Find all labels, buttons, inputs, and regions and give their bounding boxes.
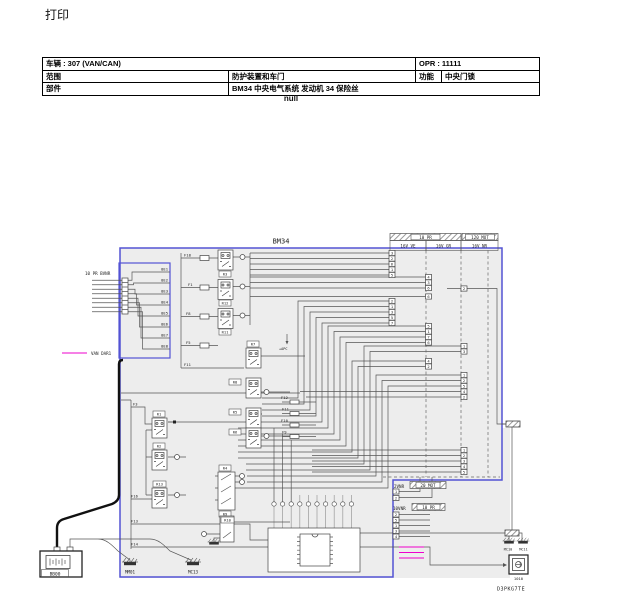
harness-band-2-label: 120 MOT — [471, 235, 489, 240]
wire-label: 8E2 — [161, 278, 168, 283]
pin: 3 — [395, 529, 397, 534]
sheet-code: D3PKG7TE — [497, 587, 525, 593]
pin: 3 — [463, 459, 465, 464]
junction-dot — [173, 421, 176, 424]
fuse-label-f18: F18 — [184, 253, 192, 258]
fuse-label-f1: F1 — [188, 282, 193, 287]
col1-header: 16V VE — [400, 244, 416, 249]
relay-label-r7: R7 — [251, 342, 256, 347]
pin: 7 — [427, 335, 429, 340]
relay-r4-body — [218, 472, 235, 510]
fuse-label-f8: F8 — [186, 311, 191, 316]
column-headers: 10 PR 120 MOT 16V VE 16V GR 16V NR — [390, 234, 498, 251]
pin: 2 — [391, 299, 393, 304]
relay-label-r1: R1 — [157, 412, 162, 417]
relay-label-r8: R8 — [233, 380, 238, 385]
ground-label-mc11: MC11 — [519, 548, 527, 552]
fuse-label-f13: F13 — [131, 519, 138, 524]
unit-label: 1010 — [514, 576, 524, 581]
wire-label: 8E8 — [161, 344, 169, 349]
ground-label-mm01: MM01 — [125, 570, 136, 575]
col2-header: 16V GR — [436, 244, 452, 249]
fuse-label-f12: F12 — [281, 395, 288, 400]
left-connector-label: 10 PR BVNR — [85, 271, 111, 276]
van-bus-legend: VAN DAR1 — [91, 351, 112, 356]
relay-label-r3: R3 — [223, 272, 228, 277]
fuse-label-f9: F9 — [282, 430, 287, 435]
fuse-label-f3: F3 — [133, 402, 138, 407]
pin: 5 — [463, 470, 465, 475]
relay-label-r2: R2 — [157, 444, 162, 449]
ground-label-mc10: MC10 — [504, 548, 512, 552]
battery-feed-wire — [57, 360, 123, 551]
wire-label: 8E1 — [161, 267, 169, 272]
harness-band-1-label: 10 PR — [419, 235, 432, 240]
conn-b-label: 10VNR — [393, 506, 406, 511]
pin: 5 — [463, 384, 465, 389]
pin: 2 — [463, 378, 465, 383]
relay-label-r5: R5 — [233, 410, 238, 415]
relay-label-r13: R13 — [156, 482, 163, 487]
diagram-title: BM34 — [273, 238, 290, 246]
pin: 5 — [395, 518, 397, 523]
conn-b-name: 10 PR — [422, 505, 435, 510]
apc-annotation: +APC — [279, 347, 287, 351]
pin: 3 — [391, 310, 393, 315]
fuse-label-f11: F11 — [184, 362, 192, 367]
pin: 2 — [427, 364, 429, 369]
pin: 2 — [463, 453, 465, 458]
wiring-diagram: BM34 10 PR BVNR 8E1 8E2 8E3 8E4 8E5 8E6 … — [0, 0, 636, 607]
pin: 2 — [395, 496, 397, 501]
pin: 7 — [391, 321, 393, 326]
relay-label-r11: R11 — [222, 330, 230, 335]
wire-label: 8E6 — [161, 322, 169, 327]
fuse-label-f10: F10 — [281, 418, 289, 423]
pin: 5 — [391, 273, 393, 278]
pin: 3 — [427, 280, 429, 285]
splice-box — [506, 421, 520, 427]
relay-label-r4: R4 — [223, 466, 228, 471]
fuse-label-f11b: F11 — [282, 407, 290, 412]
relay-label-r12: R12 — [222, 301, 229, 306]
wire-label: 8E3 — [161, 289, 168, 294]
pin: 2 — [391, 256, 393, 261]
wire-label: 8E7 — [161, 333, 168, 338]
relay-label-r10: R10 — [224, 518, 232, 523]
pin: 2 — [463, 395, 465, 400]
pin: 3 — [391, 251, 393, 256]
wire-label: 8E4 — [161, 300, 169, 305]
pin: 2 — [395, 512, 397, 517]
pin: 5 — [427, 324, 429, 329]
pin: 3 — [463, 349, 465, 354]
fuse-label-f5: F5 — [186, 340, 191, 345]
ground-label-mc13: MC13 — [188, 570, 199, 575]
fuse-label-f16: F16 — [131, 494, 139, 499]
ground-icon — [517, 538, 530, 544]
pin: 5 — [391, 315, 393, 320]
splice-box — [505, 530, 519, 536]
conn-a-name: 20 MOT — [420, 483, 436, 488]
wire-label: 8E5 — [161, 311, 168, 316]
col3-header: 16V NR — [472, 244, 488, 249]
relay-label-r6: R6 — [233, 430, 238, 435]
fuse-label-f14: F14 — [131, 542, 139, 547]
battery-label: BB00 — [50, 571, 61, 577]
pin: 2 — [463, 286, 465, 291]
